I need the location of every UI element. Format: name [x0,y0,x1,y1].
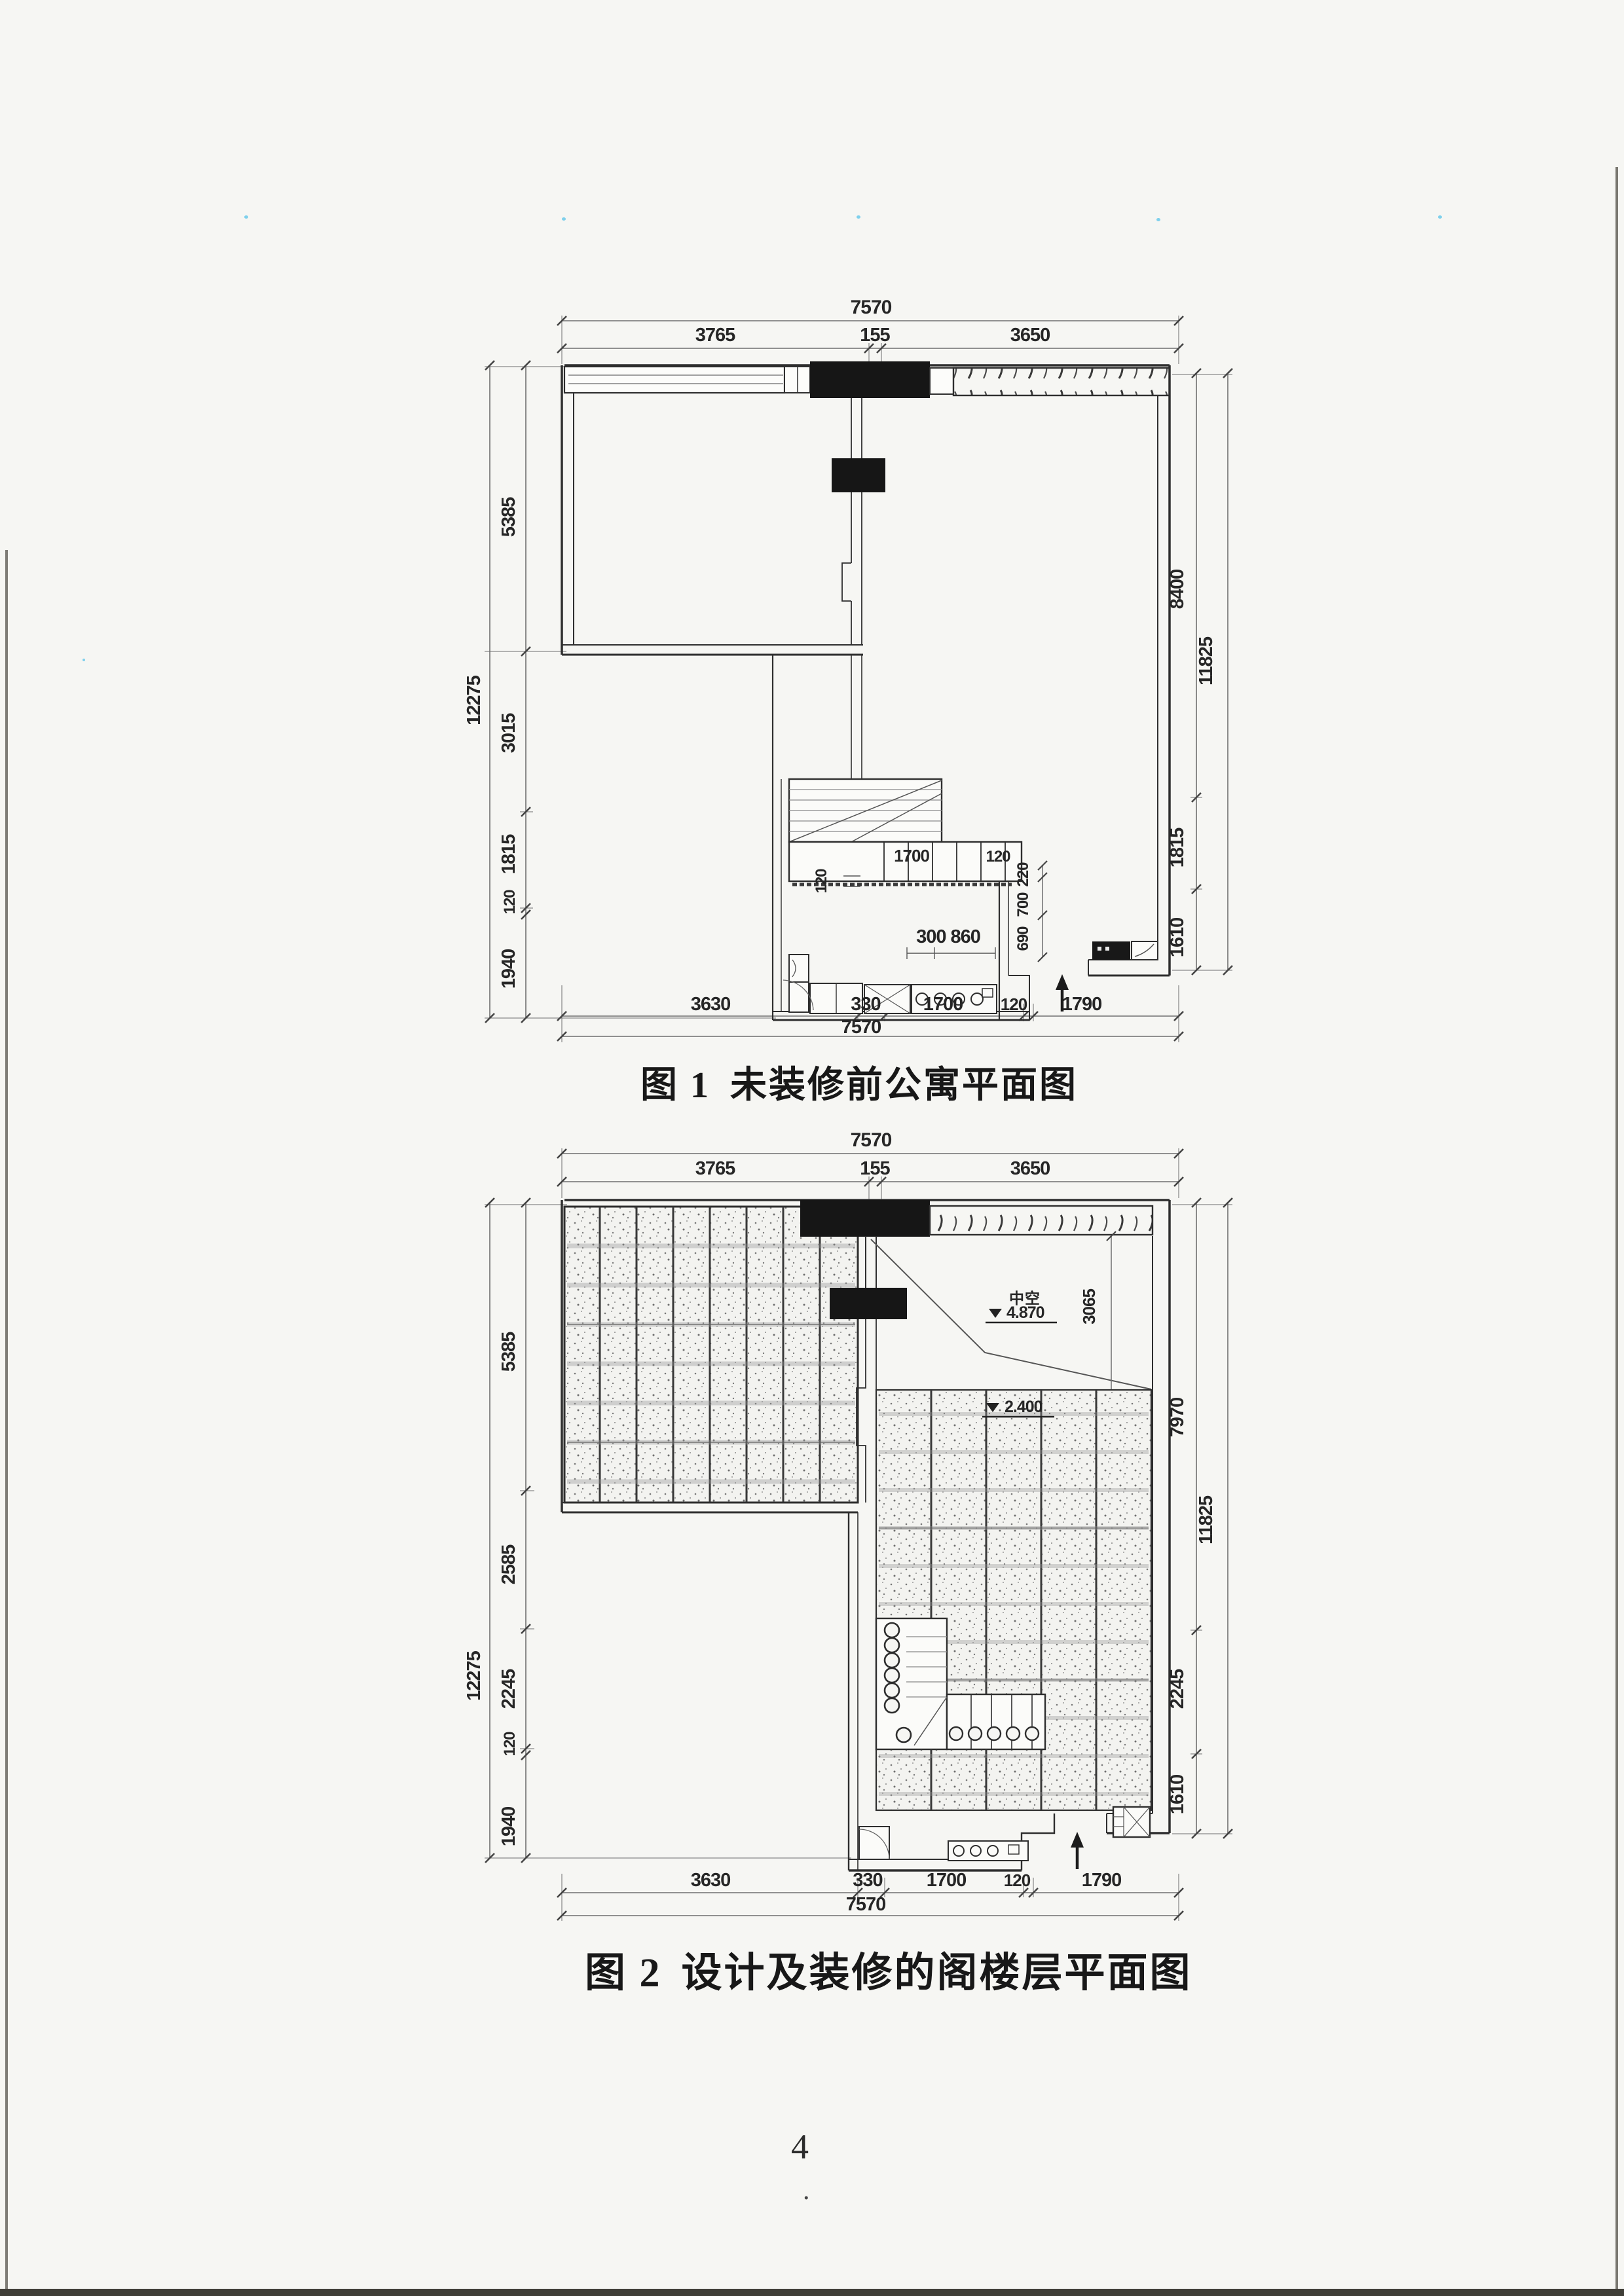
fig2-dim-left-seg4: 120 [501,1732,519,1757]
fig2-dim-left-seg5: 1940 [498,1807,519,1847]
fig2-entry-arrow [1071,1832,1084,1869]
scan-speck [857,215,860,219]
scan-edge-right [1615,167,1618,2296]
fig1-dim-top-seg3: 3650 [1010,325,1050,346]
fig2-dim-top-total: 7570 [851,1129,892,1151]
fig1-dim-v-seg3: 690 [1014,926,1032,951]
figure1-caption-label: 图 1 [640,1065,710,1106]
fig1-dim-right-seg1: 8400 [1167,570,1188,610]
fig1-dim-top-seg1: 3765 [695,325,735,346]
scan-speck [244,215,248,219]
fig1-dim-bottom-seg3: 1700 [923,994,963,1015]
fig1-dim-v-seg1: 220 [1014,862,1032,887]
fig1-dim-v-seg2: 700 [1014,892,1032,917]
fig2-upper-level: 4.870 [1006,1303,1044,1322]
fig1-dim-bottom-seg5: 1790 [1062,994,1102,1015]
fig2-dim-right-seg2: 2245 [1167,1669,1188,1709]
fig1-dim-right-seg3: 1610 [1167,918,1188,958]
fig1-stairs [789,779,1022,884]
fig2-dim-left-total: 12275 [464,1650,485,1701]
figure1-drawing: 7570 3765 155 3650 12275 5385 3015 1815 … [452,288,1297,1054]
scan-edge-bottom [0,2289,1624,2296]
fig1-dimension-labels: 7570 3765 155 3650 12275 5385 3015 1815 … [464,297,1217,1038]
page-footer-dot: . [803,2175,810,2206]
figure2-caption-label: 图 2 [585,1951,662,1995]
fig2-dim-right-seg1: 7970 [1167,1398,1188,1438]
fig1-dim-left-total: 12275 [464,675,485,725]
scan-speck [83,659,85,661]
figure2-drawing: 7570 3765 155 3650 12275 5385 2585 2245 … [452,1126,1297,1938]
fig2-dim-top-seg3: 3650 [1010,1158,1050,1179]
fig2-dim-right-seg3: 1610 [1167,1775,1188,1815]
fig1-dim-cabinet: 300 860 [916,926,980,947]
fig1-fixtures [783,955,997,1013]
figure1-caption: 图 1未装修前公寓平面图 [640,1055,1078,1108]
scan-edge-left [5,550,8,2291]
fig2-dim-bottom-seg2: 330 [853,1870,882,1891]
fig1-dim-bottom-seg1: 3630 [691,994,731,1015]
fig2-dim-void-height: 3065 [1079,1289,1099,1324]
fig1-dim-bottom-total: 7570 [841,1017,881,1038]
fig1-dim-top-total: 7570 [851,297,892,318]
fig2-dim-bottom-total: 7570 [846,1894,886,1915]
scan-speck [562,217,566,221]
fig2-dim-left-seg3: 2245 [498,1669,519,1709]
fig1-dim-left-seg4: 120 [501,890,519,915]
fig2-dim-right-total: 11825 [1196,1495,1217,1544]
fig1-dim-left-seg3: 1815 [498,834,519,874]
fig1-dim-right-total: 11825 [1196,636,1217,685]
fig1-dimension-lines [485,316,1232,1042]
fig1-walls [562,361,1170,1020]
fig1-dim-stair-width: 1700 [894,846,929,866]
fig1-dim-stair-gap: 120 [986,848,1010,866]
scan-speck [1438,215,1442,219]
fig1-dim-bottom-seg4: 120 [1001,994,1027,1014]
fig2-dim-left-seg2: 2585 [498,1544,519,1584]
page-number: 4 [791,2126,809,2167]
fig2-dim-top-seg2: 155 [860,1158,890,1179]
fig2-dim-left-seg1: 5385 [498,1332,519,1372]
figure2-caption: 图 2设计及装修的阁楼层平面图 [585,1939,1192,1998]
scanned-document-page: 7570 3765 155 3650 12275 5385 3015 1815 … [0,0,1624,2296]
fig1-dim-corridor-gap: 120 [813,869,830,894]
scan-speck [1156,218,1160,221]
fig2-lower-level: 2.400 [1005,1398,1043,1416]
fig2-dim-top-seg1: 3765 [695,1158,735,1179]
fig1-dim-left-seg2: 3015 [498,713,519,753]
fig1-dim-left-seg5: 1940 [498,949,519,989]
fig2-dim-bottom-seg4: 120 [1004,1870,1031,1890]
figure2-caption-title: 设计及装修的阁楼层平面图 [682,1951,1192,1995]
fig2-dim-bottom-seg3: 1700 [927,1870,967,1891]
fig2-dim-bottom-seg5: 1790 [1082,1870,1122,1891]
fig2-left-floor-grid [564,1207,858,1503]
figure1-caption-title: 未装修前公寓平面图 [730,1065,1078,1106]
fig1-dim-bottom-seg2: 330 [851,994,880,1015]
fig1-dim-top-seg2: 155 [860,325,890,346]
fig2-dim-bottom-seg1: 3630 [691,1870,731,1891]
fig1-corner-fixture [1092,941,1158,960]
fig1-dim-left-seg1: 5385 [498,497,519,537]
fig1-dim-right-seg2: 1815 [1167,828,1188,867]
